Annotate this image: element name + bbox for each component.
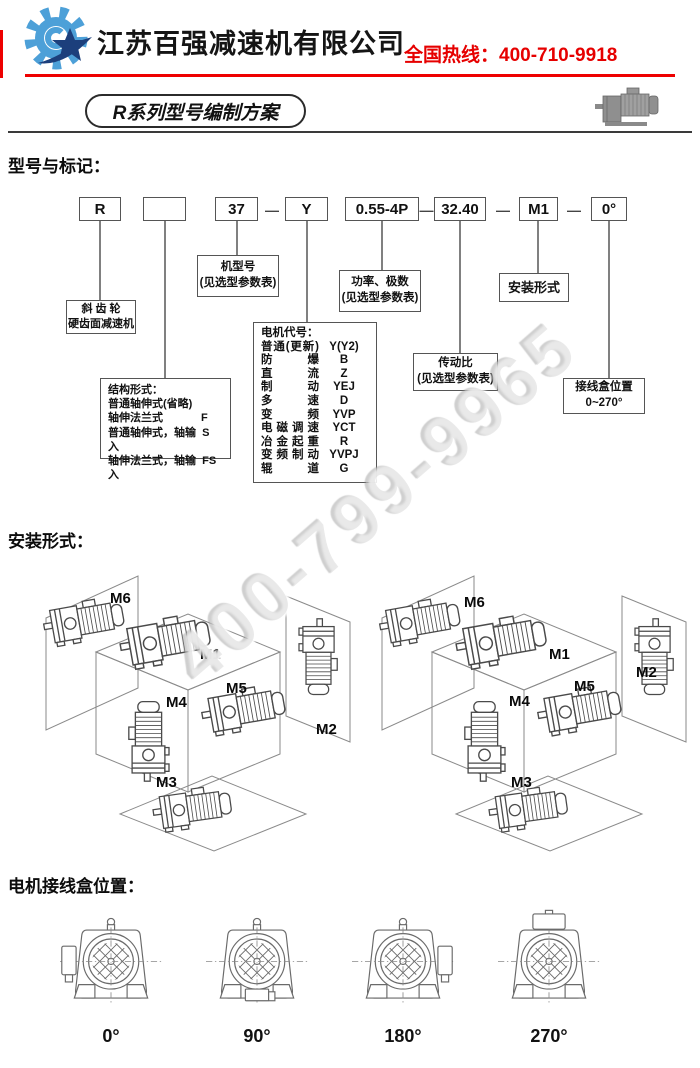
code-box-mounting: M1 <box>519 197 558 221</box>
mount-label-m1: M1 <box>200 646 221 663</box>
motor-code-label: 制动 <box>261 381 319 395</box>
annotation-line: 斜 齿 轮 <box>81 302 120 317</box>
section-heading-mounting-forms: 安装形式： <box>8 527 93 552</box>
motor-code-value: G <box>319 463 369 477</box>
annotation-line: 接线盒位置 <box>575 380 633 396</box>
annotation-ratio: 传动比 (见选型参数表) <box>413 353 498 391</box>
mount-label-m6: M6 <box>110 590 131 607</box>
structure-label: 轴伸法兰式 <box>108 411 163 425</box>
connector-line <box>608 221 610 378</box>
annotation-line: 传动比 <box>438 356 473 372</box>
motor-code-label: 普通(更新) <box>261 341 319 355</box>
motor-code-label: 多速 <box>261 395 319 409</box>
connector-line <box>99 221 101 300</box>
company-logo-gear-star-icon <box>20 5 98 73</box>
page: 江苏百强减速机有限公司 全国热线：400-710-9918 R系列型号编制方案 … <box>0 0 700 1068</box>
structure-title: 结构形式： <box>108 383 223 397</box>
code-box-motor: Y <box>285 197 328 221</box>
mount-label-m3: M3 <box>511 774 532 791</box>
motor-code-label: 电磁调速 <box>261 422 319 436</box>
annotation-terminal: 接线盒位置 0~270° <box>563 378 645 414</box>
motor-code-label: 冶金起重 <box>261 436 319 450</box>
code-box-frame: 37 <box>215 197 258 221</box>
mount-label-m2: M2 <box>316 721 337 738</box>
motor-code-row: 冶金起重 R <box>261 436 369 450</box>
motor-endview-90deg-icon <box>206 908 308 1004</box>
gear-reducer-photo <box>593 84 663 128</box>
mount-label-m5: M5 <box>574 678 595 695</box>
code-box-power: 0.55-4P <box>345 197 419 221</box>
motor-code-value: YVPJ <box>319 449 369 463</box>
iso-mounting-diagram-icon <box>28 556 358 856</box>
motor-code-row: 多速 D <box>261 395 369 409</box>
structure-code: S <box>202 426 223 440</box>
motor-code-row: 防爆 B <box>261 354 369 368</box>
annotation-line: 0~270° <box>586 396 623 412</box>
motor-code-value: YCT <box>319 422 369 436</box>
annotation-power: 功率、极数 (见选型参数表) <box>339 270 421 312</box>
code-box-terminal: 0° <box>591 197 627 221</box>
mounting-diagram-flange: M6 M1 M2 M4 M5 M3 <box>364 556 694 856</box>
angle-label-0: 0° <box>60 1026 162 1047</box>
structure-row: 轴伸法兰式 F <box>108 411 223 425</box>
motor-code-row: 电磁调速 YCT <box>261 422 369 436</box>
motor-code-label: 防爆 <box>261 354 319 368</box>
motor-code-row: 变频制动 YVPJ <box>261 449 369 463</box>
structure-code: FS <box>202 454 223 468</box>
connector-line <box>459 221 461 353</box>
motor-code-label: 变频制动 <box>261 449 319 463</box>
annotation-frame: 机型号 (见选型参数表) <box>197 255 279 297</box>
annotation-series: 斜 齿 轮 硬齿面减速机 <box>66 300 136 334</box>
code-box-series: R <box>79 197 121 221</box>
series-title-badge: R系列型号编制方案 <box>85 94 306 128</box>
angle-label-90: 90° <box>206 1026 308 1047</box>
motor-endview-0deg-icon <box>60 908 162 1004</box>
angle-label-180: 180° <box>352 1026 454 1047</box>
company-name: 江苏百强减速机有限公司 <box>97 22 405 61</box>
mounting-diagram-shaft: M6 M1 M2 M4 M5 M3 <box>28 556 358 856</box>
annotation-line: (见选型参数表) <box>200 276 277 292</box>
structure-row: 轴伸法兰式，轴输入 FS <box>108 454 223 482</box>
motor-code-row: 变频 YVP <box>261 409 369 423</box>
structure-row: 普通轴伸式(省略) <box>108 397 223 411</box>
motor-code-value: YEJ <box>319 381 369 395</box>
section-heading-terminal-positions: 电机接线盒位置： <box>8 872 144 897</box>
structure-label: 普通轴伸式(省略) <box>108 397 192 411</box>
connector-line <box>381 221 383 270</box>
motor-code-row: 辊道 G <box>261 463 369 477</box>
structure-code: F <box>201 411 223 425</box>
annotation-mounting: 安装形式 <box>499 273 569 302</box>
mount-label-m1: M1 <box>549 646 570 663</box>
mount-label-m4: M4 <box>166 694 187 711</box>
annotation-structure: 结构形式： 普通轴伸式(省略) 轴伸法兰式 F 普通轴伸式，轴输入 S 轴伸法兰… <box>100 378 231 459</box>
mount-label-m6: M6 <box>464 594 485 611</box>
motor-codes-title: 电机代号： <box>261 327 369 341</box>
motor-code-value: Z <box>319 368 369 382</box>
motor-code-label: 变频 <box>261 409 319 423</box>
annotation-motor-codes: 电机代号： 普通(更新) Y(Y2) 防爆 B 直流 Z 制动 YEJ 多速 D… <box>253 322 377 483</box>
motor-code-row: 直流 Z <box>261 368 369 382</box>
mount-label-m4: M4 <box>509 693 530 710</box>
motor-code-value: R <box>319 436 369 450</box>
red-divider <box>25 74 675 77</box>
mount-label-m5: M5 <box>226 680 247 697</box>
annotation-line: (见选型参数表) <box>417 372 494 388</box>
motor-code-value: B <box>319 354 369 368</box>
annotation-line: 机型号 <box>221 260 256 276</box>
code-dash: — <box>419 201 434 219</box>
mount-label-m2: M2 <box>636 664 657 681</box>
motor-endview-180deg-icon <box>352 908 454 1004</box>
structure-title-text: 结构形式： <box>108 383 163 397</box>
red-page-edge <box>0 30 3 78</box>
annotation-line: (见选型参数表) <box>342 291 419 307</box>
connector-line <box>537 221 539 273</box>
connector-line <box>306 221 308 322</box>
code-dash: — <box>489 201 517 219</box>
motor-code-row: 制动 YEJ <box>261 381 369 395</box>
motor-code-row: 普通(更新) Y(Y2) <box>261 341 369 355</box>
annotation-line: 硬齿面减速机 <box>68 317 134 332</box>
connector-line <box>164 221 166 378</box>
motor-code-value: YVP <box>319 409 369 423</box>
annotation-line: 安装形式 <box>508 279 560 297</box>
code-dash: — <box>260 201 284 219</box>
code-box-ratio: 32.40 <box>434 197 486 221</box>
section-heading-model-marking: 型号与标记： <box>8 152 110 177</box>
angle-label-270: 270° <box>498 1026 600 1047</box>
motor-code-value: Y(Y2) <box>319 341 369 355</box>
annotation-line: 功率、极数 <box>351 275 409 291</box>
code-dash: — <box>560 201 588 219</box>
motor-codes-title-text: 电机代号： <box>261 327 319 341</box>
mount-label-m3: M3 <box>156 774 177 791</box>
motor-code-label: 直流 <box>261 368 319 382</box>
motor-code-value: D <box>319 395 369 409</box>
motor-code-label: 辊道 <box>261 463 319 477</box>
code-box-structure <box>143 197 186 221</box>
header-divider <box>8 131 692 133</box>
structure-label: 轴伸法兰式，轴输入 <box>108 454 202 482</box>
hotline: 全国热线：400-710-9918 <box>404 40 617 67</box>
motor-endview-270deg-icon <box>498 908 600 1004</box>
connector-line <box>236 221 238 255</box>
structure-label: 普通轴伸式，轴输入 <box>108 426 202 454</box>
structure-row: 普通轴伸式，轴输入 S <box>108 426 223 454</box>
